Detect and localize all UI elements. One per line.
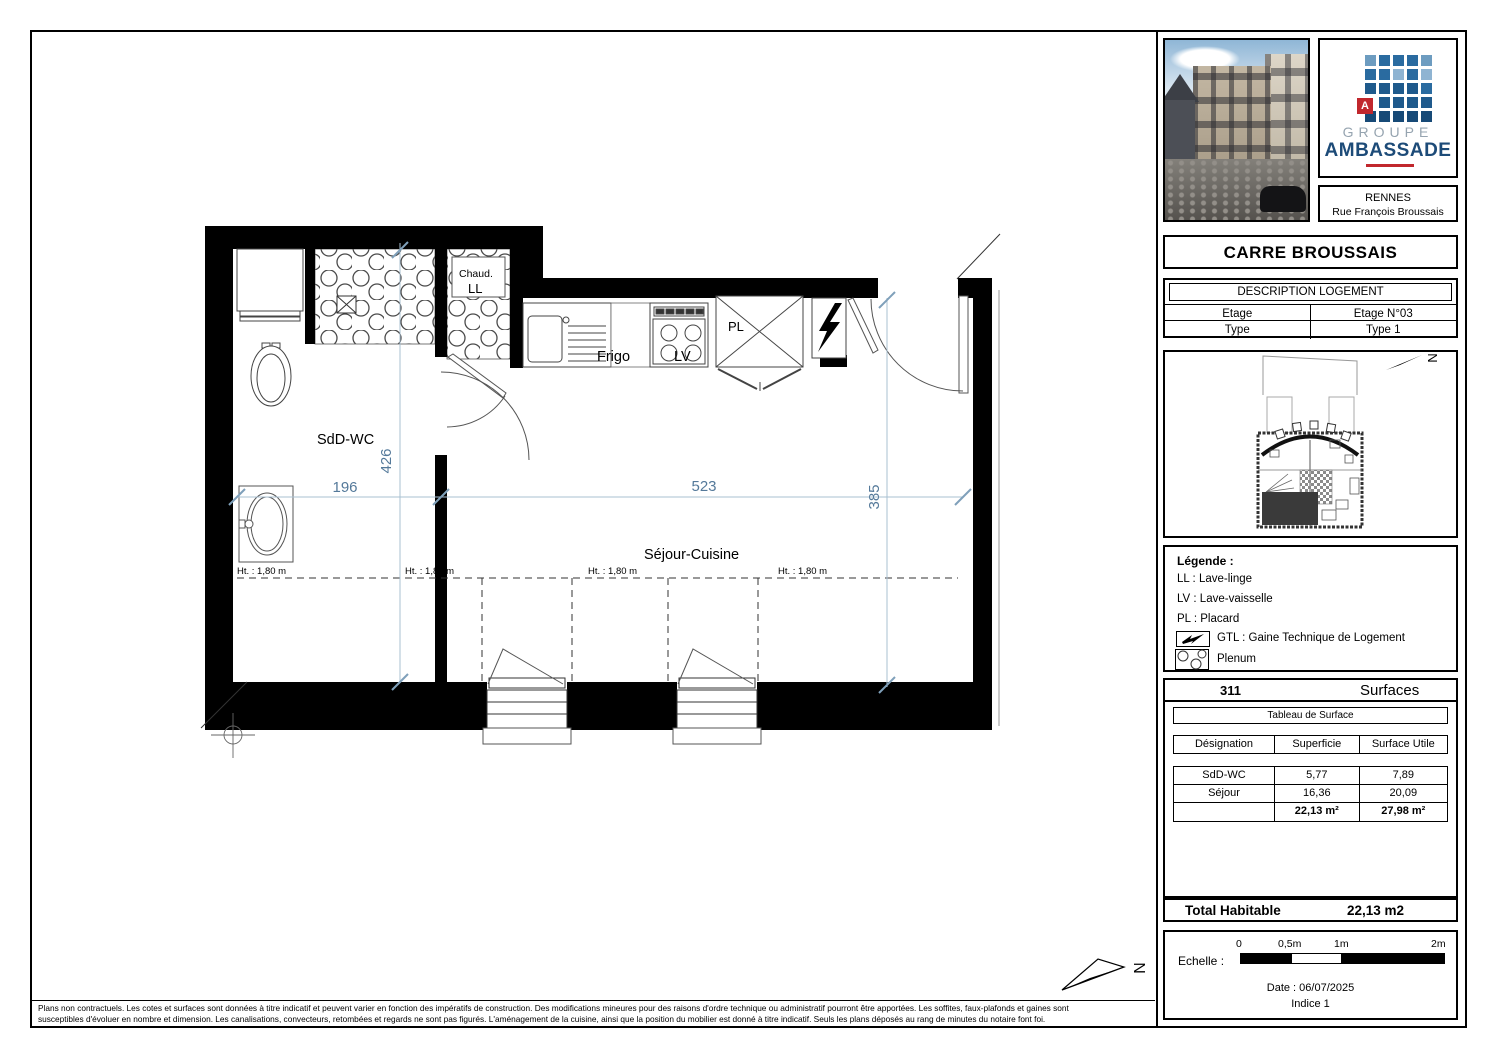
logo-square (1393, 111, 1404, 122)
disclaimer: Plans non contractuels. Les cotes et sur… (32, 1000, 1155, 1026)
agency-logo: A GROUPE AMBASSADE (1318, 38, 1458, 178)
wall (205, 226, 543, 249)
logo-square (1379, 55, 1390, 66)
description-row-value: Type 1 (1311, 321, 1457, 339)
legend-item: PL : Placard (1177, 613, 1239, 625)
col-surface-utile: Surface Utile (1360, 736, 1447, 753)
logo-square (1365, 69, 1376, 80)
logo-underline (1366, 164, 1414, 167)
wall (305, 249, 315, 344)
logo-square (1421, 97, 1432, 108)
dim-523: 523 (691, 478, 716, 495)
logo-square (1407, 69, 1418, 80)
window (673, 649, 761, 744)
logo-ambassade-text: AMBASSADE (1320, 140, 1456, 162)
dim-385: 385 (866, 484, 883, 509)
surfaces-subtitle: Tableau de Surface (1173, 707, 1448, 724)
north-label: N (1130, 962, 1147, 974)
height-limit-lines (237, 578, 958, 682)
table-total-row: 22,13 m² 27,98 m² (1174, 803, 1447, 821)
total-habitable-row: Total Habitable 22,13 m2 (1163, 898, 1458, 922)
scale-tick: 1m (1334, 938, 1349, 950)
logo-square (1421, 69, 1432, 80)
street-photo (1163, 38, 1310, 222)
cell-designation: Séjour (1174, 785, 1275, 802)
cell-total-superficie: 22,13 m² (1275, 803, 1360, 821)
logo-square (1379, 111, 1390, 122)
col-superficie: Superficie (1275, 736, 1360, 753)
room-label-sdd: SdD-WC (317, 432, 374, 448)
cell-surface-utile: 20,09 (1360, 785, 1447, 802)
scale-label: Echelle : (1178, 954, 1224, 968)
logo-square (1407, 111, 1418, 122)
panel-divider (1156, 30, 1158, 1028)
legend-gtl-label: GTL : Gaine Technique de Logement (1217, 632, 1405, 644)
logo-square (1407, 97, 1418, 108)
wall (510, 278, 878, 298)
disclaimer-line: Plans non contractuels. Les cotes et sur… (38, 1003, 1149, 1014)
scale-box: Echelle : 0 0,5m 1m 2m Date : 06/07/2025… (1163, 930, 1458, 1020)
lv-label: LV (674, 349, 691, 365)
site-plan-box: N (1163, 350, 1458, 538)
legend-item: LL : Lave-linge (1177, 573, 1252, 585)
total-habitable-label: Total Habitable (1185, 903, 1281, 918)
logo-square (1407, 83, 1418, 94)
project-title: CARRE BROUSSAIS (1163, 235, 1458, 269)
entrance-door (848, 296, 968, 393)
logo-square (1379, 69, 1390, 80)
logo-square (1421, 111, 1432, 122)
plenum-legend-icon (1175, 649, 1209, 670)
logo-square (1393, 69, 1404, 80)
ht-label: Ht. : 1,80 m (778, 566, 827, 577)
logo-square (1393, 55, 1404, 66)
gtl-legend-icon (1176, 631, 1210, 647)
col-designation: Désignation (1174, 736, 1275, 753)
dim-426: 426 (378, 448, 395, 473)
north-arrow-icon: N (1062, 959, 1147, 990)
plan-indice: Indice 1 (1165, 998, 1456, 1010)
table-row: Séjour 16,36 20,09 (1174, 785, 1447, 803)
cell-superficie: 16,36 (1275, 785, 1360, 802)
logo-square (1421, 55, 1432, 66)
toilet-icon (237, 249, 303, 406)
description-row-label: Type (1165, 321, 1311, 339)
logo-square (1365, 83, 1376, 94)
cell-superficie: 5,77 (1275, 767, 1360, 784)
description-table: DESCRIPTION LOGEMENT Etage Etage N°03 Ty… (1163, 278, 1458, 338)
cell-empty (1174, 803, 1275, 821)
scale-tick: 0,5m (1278, 938, 1301, 950)
shower-vent-icon (337, 296, 356, 313)
legend-title: Légende : (1177, 554, 1234, 568)
wall (973, 278, 992, 730)
legend-plenum-label: Plenum (1217, 653, 1256, 665)
pl-label: PL (728, 319, 744, 334)
scale-bar-segment (1342, 953, 1445, 964)
ll-label: LL (468, 281, 482, 296)
frigo-label: Frigo (597, 349, 630, 365)
project-city: RENNES (1320, 191, 1456, 205)
ht-label: Ht. : 1,80 m (405, 566, 454, 577)
height-labels: Ht. : 1,80 m Ht. : 1,80 m Ht. : 1,80 m H… (237, 566, 827, 577)
logo-letter-a: A (1357, 98, 1373, 114)
wall (205, 682, 992, 730)
description-header: DESCRIPTION LOGEMENT (1169, 283, 1452, 301)
site-plan-drawing: N (1165, 352, 1456, 536)
logo-square (1393, 97, 1404, 108)
logo-square (1393, 83, 1404, 94)
legend: Légende : LL : Lave-linge LV : Lave-vais… (1163, 545, 1458, 672)
legend-item: LV : Lave-vaisselle (1177, 593, 1273, 605)
table-row: SdD-WC 5,77 7,89 (1174, 767, 1447, 785)
dimension-labels: 196 523 426 385 (332, 448, 883, 509)
unit-number: 311 (1220, 683, 1241, 698)
wall (205, 226, 233, 730)
scale-bar-segment (1291, 953, 1342, 964)
disclaimer-line: susceptibles d'évoluer en nombre et dime… (38, 1014, 1149, 1025)
logo-square (1379, 83, 1390, 94)
surfaces-table: 311 Surfaces Tableau de Surface Désignat… (1163, 678, 1458, 898)
surfaces-header: Surfaces (1360, 682, 1419, 699)
cell-total-utile: 27,98 m² (1360, 803, 1447, 821)
floor-plan: Chaud. LL (30, 30, 1156, 998)
chaud-label: Chaud. (459, 268, 493, 280)
logo-square (1379, 97, 1390, 108)
placard-icon (716, 296, 803, 391)
scale-tick: 0 (1236, 938, 1242, 950)
ht-label: Ht. : 1,80 m (237, 566, 286, 577)
total-habitable-value: 22,13 m2 (1347, 903, 1404, 918)
logo-square (1365, 55, 1376, 66)
site-north-label: N (1425, 353, 1440, 362)
site-north-arrow-icon (1386, 355, 1422, 370)
logo-groupe-text: GROUPE (1320, 124, 1456, 140)
scale-bar-segment (1240, 953, 1291, 964)
interior-doors (441, 354, 529, 460)
gtl-icon (812, 298, 846, 358)
scale-tick: 2m (1431, 938, 1446, 950)
cell-designation: SdD-WC (1174, 767, 1275, 784)
project-address: RENNES Rue François Broussais (1318, 185, 1458, 222)
window (483, 649, 571, 744)
cell-surface-utile: 7,89 (1360, 767, 1447, 784)
wall (510, 249, 523, 368)
wall (435, 249, 447, 357)
project-street: Rue François Broussais (1320, 205, 1456, 219)
plan-date: Date : 06/07/2025 (1165, 982, 1456, 994)
chaud-closet: Chaud. LL (452, 257, 505, 297)
room-label-sejour: Séjour-Cuisine (644, 547, 739, 563)
photo-car (1260, 186, 1306, 212)
ht-label: Ht. : 1,80 m (588, 566, 637, 577)
logo-square (1407, 55, 1418, 66)
logo-square (1421, 83, 1432, 94)
dim-196: 196 (332, 479, 357, 496)
photo-tower-roof (1163, 74, 1199, 102)
